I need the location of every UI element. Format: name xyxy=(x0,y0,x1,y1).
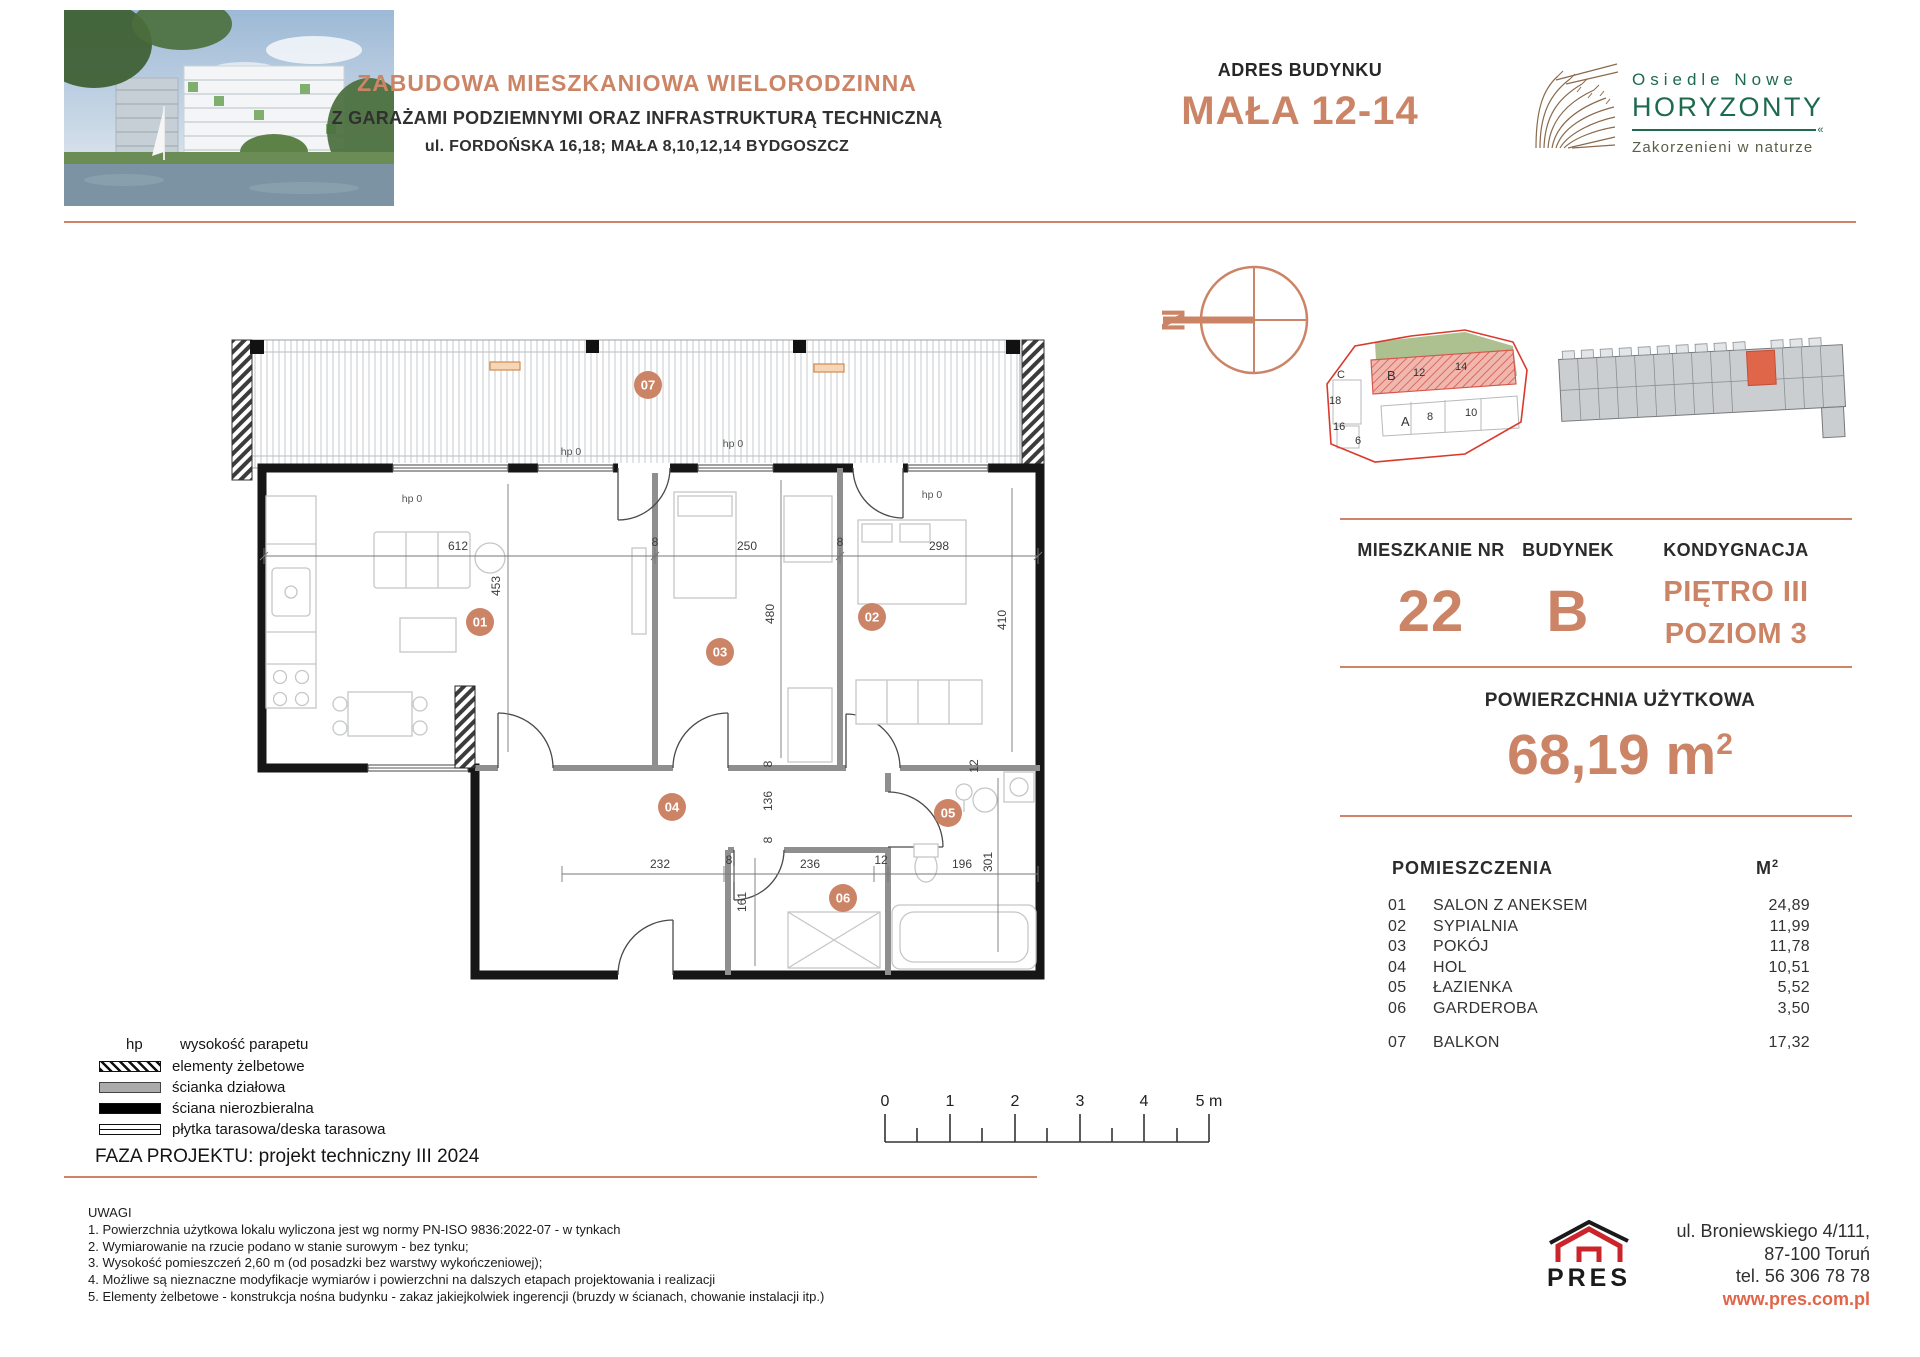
room-no: 04 xyxy=(1388,959,1433,977)
svg-text:410: 410 xyxy=(995,610,1009,630)
svg-text:236: 236 xyxy=(800,857,820,871)
rooms-table-title: POMIESZCZENIA xyxy=(1392,858,1553,879)
svg-text:5 m: 5 m xyxy=(1196,1093,1222,1110)
legend-label-partition: ścianka działowa xyxy=(172,1079,285,1096)
scale-labels: 0 1 2 3 4 5 m xyxy=(881,1093,1222,1110)
svg-text:04: 04 xyxy=(665,800,680,815)
room-marker-06: 06 xyxy=(829,884,857,912)
svg-text:250: 250 xyxy=(737,539,757,553)
svg-text:B: B xyxy=(1387,368,1396,383)
concrete-column xyxy=(1022,340,1044,480)
title-line2: Z GARAŻAMI PODZIEMNYMI ORAZ INFRASTRUKTU… xyxy=(292,108,982,129)
svg-text:8: 8 xyxy=(761,760,775,767)
note-line: 1. Powierzchnia użytkowa lokalu wyliczon… xyxy=(88,1223,824,1238)
storey-value-line1: PIĘTRO III xyxy=(1646,576,1826,609)
notes: UWAGI 1. Powierzchnia użytkowa lokalu wy… xyxy=(88,1206,824,1307)
svg-text:hp 0: hp 0 xyxy=(922,489,943,501)
room-name: SYPIALNIA xyxy=(1433,918,1750,936)
svg-text:8: 8 xyxy=(761,836,775,843)
highlighted-unit xyxy=(1746,350,1776,385)
table-row: 06 GARDEROBA 3,50 xyxy=(1388,999,1810,1020)
room-name: POKÓJ xyxy=(1433,938,1750,956)
panel-divider-mid xyxy=(1340,666,1852,668)
notes-title: UWAGI xyxy=(88,1206,824,1221)
room-name: ŁAZIENKA xyxy=(1433,979,1750,997)
svg-text:136: 136 xyxy=(761,791,775,811)
svg-text:C: C xyxy=(1337,369,1345,381)
rooms-table: 01 SALON Z ANEKSEM 24,89 02 SYPIALNIA 11… xyxy=(1388,896,1810,1054)
legend-swatch-partition xyxy=(99,1082,161,1093)
balcony-area xyxy=(232,340,1044,480)
address-value: MAŁA 12-14 xyxy=(1150,89,1450,134)
svg-text:1: 1 xyxy=(946,1093,955,1110)
site-plan: C 18 16 B 12 14 A 8 10 6 xyxy=(1315,322,1550,487)
room-area: 11,99 xyxy=(1750,918,1810,936)
svg-text:01: 01 xyxy=(473,615,487,630)
address-line3: tel. 56 306 78 78 xyxy=(1630,1265,1870,1288)
svg-text:2: 2 xyxy=(1011,1093,1020,1110)
panel-divider-top xyxy=(1340,518,1852,520)
svg-text:02: 02 xyxy=(865,610,879,625)
svg-text:12: 12 xyxy=(967,759,981,773)
room-area: 17,32 xyxy=(1750,1034,1810,1052)
floor-plan-drawing: 612 8 250 8 298 232 8 236 12 196 453 480… xyxy=(228,252,1068,1032)
pres-wordmark: PRES xyxy=(1547,1264,1631,1291)
room-no: 06 xyxy=(1388,1000,1433,1018)
svg-text:453: 453 xyxy=(489,576,503,596)
storey-label: KONDYGNACJA xyxy=(1646,540,1826,561)
svg-text:480: 480 xyxy=(763,604,777,624)
room-marker-01: 01 xyxy=(466,608,494,636)
building-label: BUDYNEK xyxy=(1508,540,1628,561)
svg-text:8: 8 xyxy=(1427,411,1433,423)
address-line2: 87-100 Toruń xyxy=(1630,1243,1870,1266)
legend-label-structural: ściana nierozbieralna xyxy=(172,1100,314,1117)
legend-label-terrace: płytka tarasowa/deska tarasowa xyxy=(172,1121,385,1138)
svg-text:03: 03 xyxy=(713,645,727,660)
logo-line2: HORYZONTY xyxy=(1632,92,1824,123)
room-area: 24,89 xyxy=(1750,897,1810,915)
room-no: 07 xyxy=(1388,1034,1433,1052)
north-letter: N xyxy=(1155,308,1191,331)
floor-plan-sheet: ZABUDOWA MIESZKANIOWA WIELORODZINNA Z GA… xyxy=(0,0,1920,1357)
room-marker-02: 02 xyxy=(858,603,886,631)
svg-text:12: 12 xyxy=(1413,367,1425,379)
legend-hp-label: wysokość parapetu xyxy=(180,1036,308,1053)
logo-divider: « xyxy=(1632,126,1824,134)
project-title: ZABUDOWA MIESZKANIOWA WIELORODZINNA Z GA… xyxy=(292,70,982,156)
svg-text:A: A xyxy=(1401,414,1410,429)
svg-text:298: 298 xyxy=(929,539,949,553)
developer-address: ul. Broniewskiego 4/111, 87-100 Toruń te… xyxy=(1630,1220,1870,1310)
svg-text:hp 0: hp 0 xyxy=(723,438,744,450)
svg-text:301: 301 xyxy=(981,852,995,872)
room-name: HOL xyxy=(1433,959,1750,977)
room-no: 02 xyxy=(1388,918,1433,936)
building-level-plan xyxy=(1552,322,1852,457)
room-name: BALKON xyxy=(1433,1034,1750,1052)
svg-text:0: 0 xyxy=(881,1093,890,1110)
table-row: 04 HOL 10,51 xyxy=(1388,958,1810,979)
svg-text:612: 612 xyxy=(448,539,468,553)
table-row: 02 SYPIALNIA 11,99 xyxy=(1388,917,1810,938)
address-line1: ul. Broniewskiego 4/111, xyxy=(1630,1220,1870,1243)
legend-swatch-structural xyxy=(99,1103,161,1114)
table-row: 01 SALON Z ANEKSEM 24,89 xyxy=(1388,896,1810,917)
svg-text:232: 232 xyxy=(650,857,670,871)
svg-text:hp 0: hp 0 xyxy=(402,493,423,505)
website-link[interactable]: www.pres.com.pl xyxy=(1630,1288,1870,1311)
svg-text:8: 8 xyxy=(837,535,844,549)
room-marker-07: 07 xyxy=(634,371,662,399)
room-no: 03 xyxy=(1388,938,1433,956)
note-line: 3. Wysokość pomieszczeń 2,60 m (od posad… xyxy=(88,1256,824,1271)
svg-text:16: 16 xyxy=(1333,421,1345,433)
room-area: 10,51 xyxy=(1750,959,1810,977)
address-label: ADRES BUDYNKU xyxy=(1150,60,1450,81)
logo-line1: Osiedle Nowe xyxy=(1632,70,1824,90)
area-superscript: 2 xyxy=(1716,728,1733,761)
panel-divider-bottom xyxy=(1340,815,1852,817)
storey-value-line2: POZIOM 3 xyxy=(1646,618,1826,651)
sill-marker xyxy=(814,364,844,372)
room-marker-03: 03 xyxy=(706,638,734,666)
room-area: 5,52 xyxy=(1750,979,1810,997)
header-divider xyxy=(64,221,1856,223)
svg-text:4: 4 xyxy=(1140,1093,1149,1110)
usable-area-value: 68,19 m2 xyxy=(1370,722,1870,788)
svg-text:12: 12 xyxy=(874,853,888,867)
room-marker-05: 05 xyxy=(934,799,962,827)
apartment-number-value: 22 xyxy=(1356,578,1506,645)
svg-text:05: 05 xyxy=(941,806,955,821)
legend-swatch-concrete xyxy=(99,1061,161,1072)
room-no: 01 xyxy=(1388,897,1433,915)
scale-bar: 0 1 2 3 4 5 m xyxy=(872,1092,1222,1154)
svg-text:07: 07 xyxy=(641,378,655,393)
svg-text:14: 14 xyxy=(1455,361,1467,373)
note-line: 2. Wymiarowanie na rzucie podano w stani… xyxy=(88,1240,824,1255)
title-line1: ZABUDOWA MIESZKANIOWA WIELORODZINNA xyxy=(292,70,982,97)
concrete-column xyxy=(232,340,252,480)
table-row: 05 ŁAZIENKA 5,52 xyxy=(1388,978,1810,999)
grass-roots-icon xyxy=(1522,52,1622,156)
title-line3: ul. FORDOŃSKA 16,18; MAŁA 8,10,12,14 BYD… xyxy=(292,138,982,156)
estate-logo: Osiedle Nowe HORYZONTY « Zakorzenieni w … xyxy=(1522,52,1824,156)
legend-hp-key: hp xyxy=(126,1036,180,1053)
room-area: 11,78 xyxy=(1750,938,1810,956)
svg-text:hp 0: hp 0 xyxy=(561,446,582,458)
rooms-table-unit: M2 xyxy=(1756,858,1779,879)
table-row: 03 POKÓJ 11,78 xyxy=(1388,937,1810,958)
logo-tagline: Zakorzenieni w naturze xyxy=(1632,139,1824,156)
sill-marker xyxy=(490,362,520,370)
note-line: 4. Możliwe są nieznaczne modyfikacje wym… xyxy=(88,1273,824,1288)
svg-text:06: 06 xyxy=(836,891,850,906)
building-address: ADRES BUDYNKU MAŁA 12-14 xyxy=(1150,60,1450,134)
table-row-balcony: 07 BALKON 17,32 xyxy=(1388,1033,1810,1054)
svg-text:6: 6 xyxy=(1355,435,1361,447)
building-value: B xyxy=(1508,578,1628,645)
legend-swatch-terrace xyxy=(99,1124,161,1135)
svg-text:18: 18 xyxy=(1329,395,1341,407)
legend-divider xyxy=(64,1176,1037,1178)
svg-text:196: 196 xyxy=(952,857,972,871)
legend-label-concrete: elementy żelbetowe xyxy=(172,1058,305,1075)
room-no: 05 xyxy=(1388,979,1433,997)
usable-area-label: POWIERZCHNIA UŻYTKOWA xyxy=(1370,690,1870,712)
svg-text:8: 8 xyxy=(652,535,659,549)
svg-text:3: 3 xyxy=(1076,1093,1085,1110)
room-marker-04: 04 xyxy=(658,793,686,821)
svg-text:10: 10 xyxy=(1465,407,1477,419)
room-area: 3,50 xyxy=(1750,1000,1810,1018)
concrete-column xyxy=(455,686,475,768)
room-name: SALON Z ANEKSEM xyxy=(1433,897,1750,915)
room-name: GARDEROBA xyxy=(1433,1000,1750,1018)
svg-text:161: 161 xyxy=(735,892,749,912)
apartment-number-label: MIESZKANIE NR xyxy=(1356,540,1506,561)
project-phase: FAZA PROJEKTU: projekt techniczny III 20… xyxy=(95,1146,479,1168)
svg-text:8: 8 xyxy=(726,853,733,867)
note-line: 5. Elementy żelbetowe - konstrukcja nośn… xyxy=(88,1290,824,1305)
